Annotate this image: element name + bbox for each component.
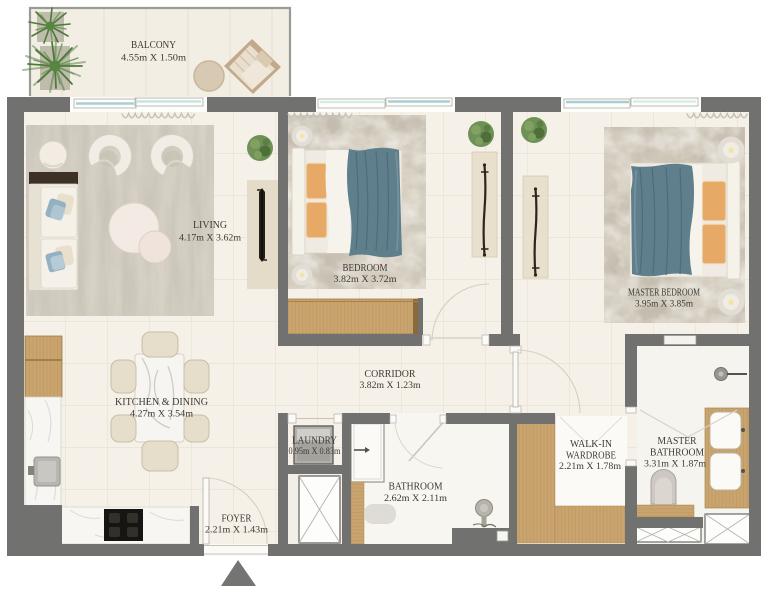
svg-text:FOYER: FOYER <box>222 514 252 525</box>
svg-text:0.95m X 0.83m: 0.95m X 0.83m <box>289 446 341 456</box>
svg-text:MASTER: MASTER <box>658 436 697 447</box>
svg-text:2.21m X 1.78m: 2.21m X 1.78m <box>559 462 622 472</box>
svg-text:3.82m X 1.23m: 3.82m X 1.23m <box>360 381 422 391</box>
svg-text:2.62m X 2.11m: 2.62m X 2.11m <box>384 494 448 504</box>
svg-text:BATHROOM: BATHROOM <box>389 482 443 493</box>
svg-text:4.17m X 3.62m: 4.17m X 3.62m <box>179 234 242 244</box>
svg-text:KITCHEN & DINING: KITCHEN & DINING <box>115 397 208 408</box>
svg-text:LIVING: LIVING <box>193 220 227 231</box>
svg-text:3.82m X 3.72m: 3.82m X 3.72m <box>334 275 398 285</box>
svg-text:BEDROOM: BEDROOM <box>343 263 388 274</box>
svg-text:2.21m X 1.43m: 2.21m X 1.43m <box>205 526 269 536</box>
svg-text:MASTER BEDROOM: MASTER BEDROOM <box>628 288 700 299</box>
svg-text:4.27m X 3.54m: 4.27m X 3.54m <box>130 410 194 420</box>
svg-text:BALCONY: BALCONY <box>131 40 176 51</box>
svg-text:WARDROBE: WARDROBE <box>566 451 616 462</box>
svg-text:WALK-IN: WALK-IN <box>570 439 612 450</box>
svg-text:BATHROOM: BATHROOM <box>650 448 704 459</box>
svg-text:CORRIDOR: CORRIDOR <box>365 369 416 380</box>
svg-text:4.55m X 1.50m: 4.55m X 1.50m <box>121 54 187 64</box>
svg-text:3.95m X 3.85m: 3.95m X 3.85m <box>635 300 694 310</box>
svg-text:3.31m X 1.87m: 3.31m X 1.87m <box>644 460 707 470</box>
svg-text:LAUNDRY: LAUNDRY <box>292 436 337 447</box>
